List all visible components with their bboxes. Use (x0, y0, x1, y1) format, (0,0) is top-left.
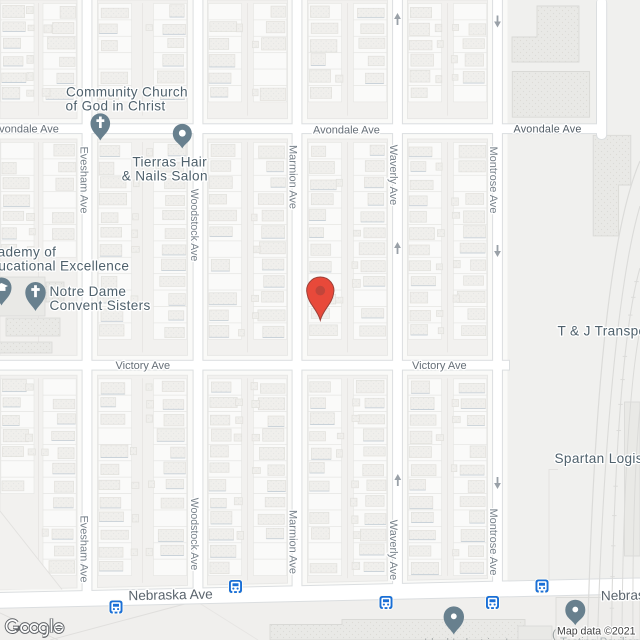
svg-text:T & J Transport: T & J Transport (558, 324, 640, 339)
svg-text:Evesham Ave: Evesham Ave (78, 146, 90, 213)
svg-text:Avondale Ave: Avondale Ave (0, 124, 59, 136)
svg-text:Woodstock Ave: Woodstock Ave (188, 498, 200, 571)
svg-text:Convent Sisters: Convent Sisters (50, 298, 151, 313)
svg-text:Montrose Ave: Montrose Ave (487, 508, 499, 575)
svg-text:Avondale Ave: Avondale Ave (514, 124, 582, 136)
svg-text:Waverly Ave: Waverly Ave (387, 520, 399, 581)
svg-text:Victory Ave: Victory Ave (116, 360, 171, 372)
svg-text:Nebraska Ave: Nebraska Ave (128, 587, 213, 604)
svg-text:Marmion Ave: Marmion Ave (287, 145, 299, 209)
svg-text:Spartan Logistics: Spartan Logistics (555, 451, 640, 466)
svg-text:Waverly Ave: Waverly Ave (387, 145, 399, 206)
svg-text:Tierras Hair: Tierras Hair (132, 154, 207, 169)
svg-text:Evesham Ave: Evesham Ave (78, 515, 90, 582)
svg-text:Map data ©2021: Map data ©2021 (557, 626, 636, 638)
svg-text:(: ( (552, 627, 556, 640)
svg-text:Montrose Ave: Montrose Ave (487, 146, 499, 213)
svg-text:Victory Ave: Victory Ave (412, 360, 467, 372)
svg-text:Woodstock Ave: Woodstock Ave (188, 189, 200, 262)
svg-text:of God in Christ: of God in Christ (66, 99, 166, 114)
svg-text:Educational Excellence: Educational Excellence (0, 258, 129, 273)
svg-text:Community Church: Community Church (66, 85, 188, 100)
svg-text:& Nails Salon: & Nails Salon (122, 169, 208, 184)
svg-text:Nebraska Ave: Nebraska Ave (601, 587, 640, 604)
svg-text:Notre Dame: Notre Dame (50, 284, 127, 299)
svg-text:Avondale Ave: Avondale Ave (313, 124, 380, 136)
svg-text:Academy of: Academy of (0, 244, 56, 259)
svg-text:Marmion Ave: Marmion Ave (287, 510, 299, 574)
